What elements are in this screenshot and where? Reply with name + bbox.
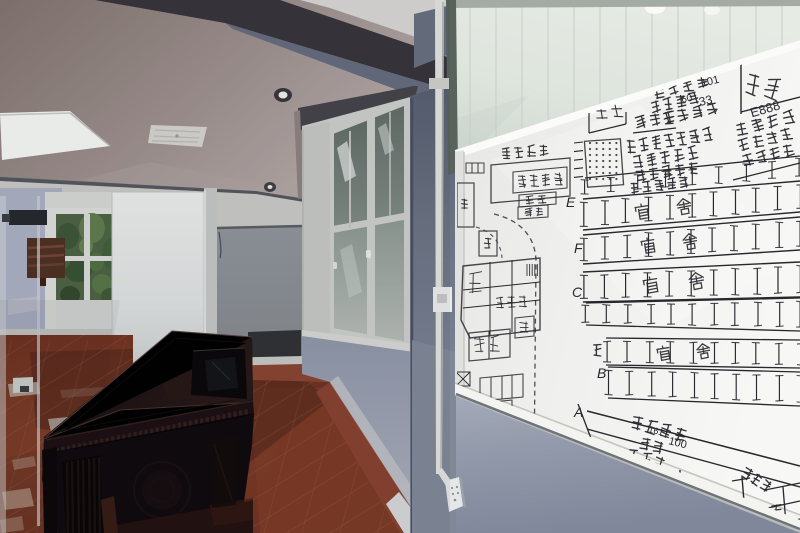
svg-text:F: F bbox=[574, 240, 584, 256]
svg-text:B: B bbox=[597, 365, 606, 381]
svg-text:C: C bbox=[572, 284, 583, 300]
svg-text:A: A bbox=[573, 404, 583, 420]
